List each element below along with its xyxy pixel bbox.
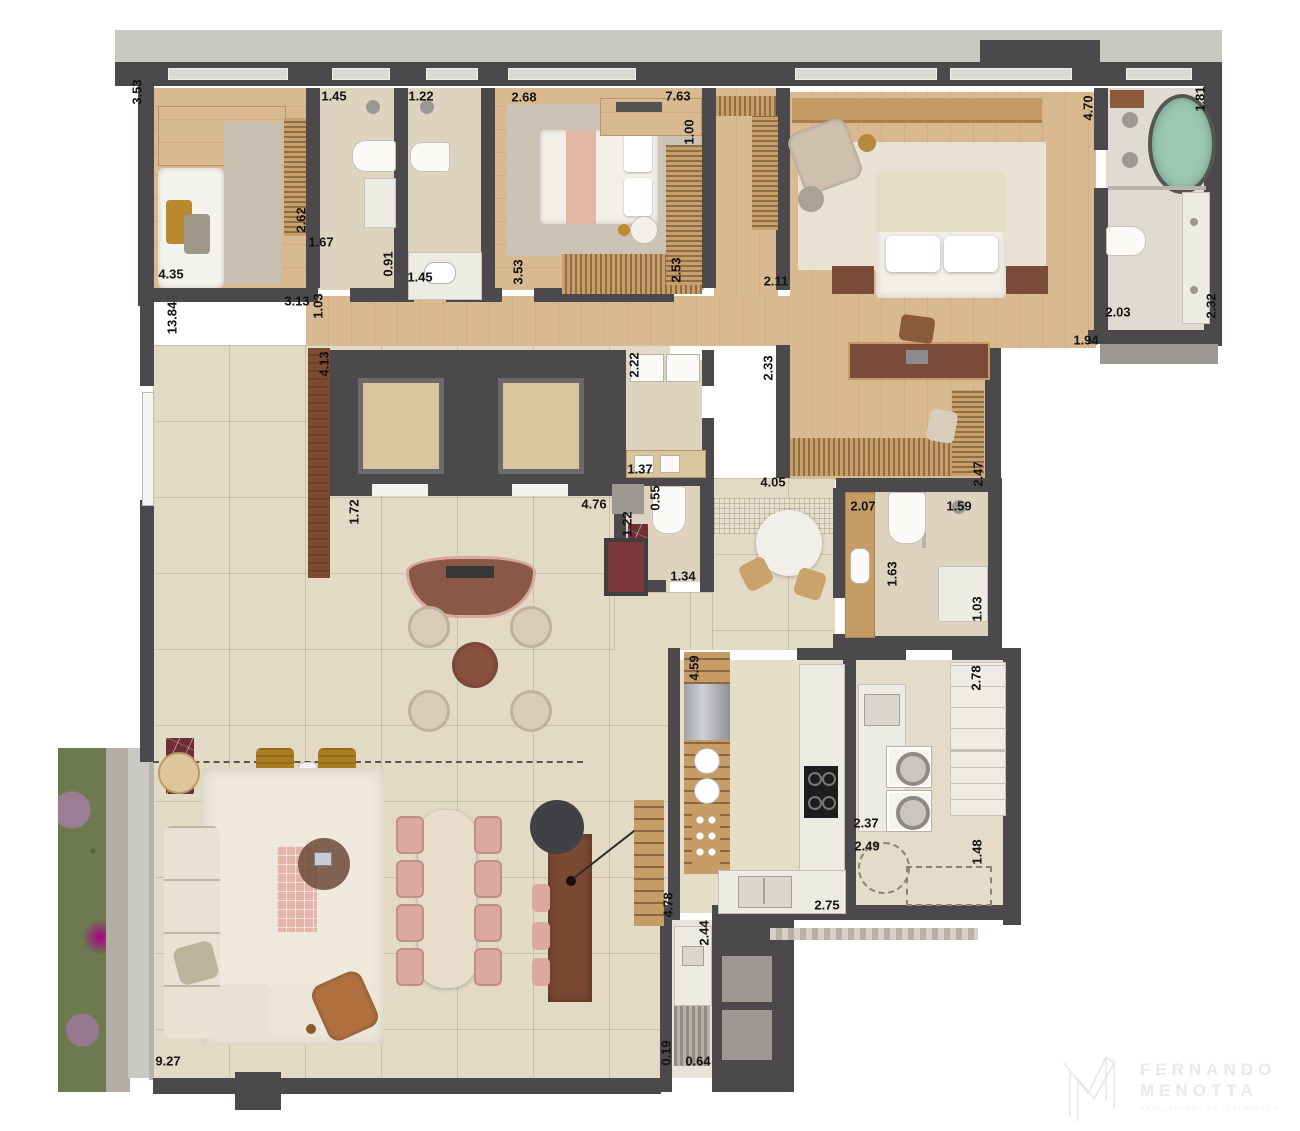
terrace-glass bbox=[149, 762, 154, 1080]
dim-label: 4.59 bbox=[687, 655, 702, 680]
logo-line2: MENOTTA bbox=[1140, 1080, 1279, 1101]
bar-stool bbox=[532, 884, 550, 912]
dining-chair bbox=[474, 948, 502, 986]
window bbox=[332, 68, 390, 80]
wall-segment bbox=[668, 648, 680, 920]
fridge bbox=[684, 684, 730, 740]
washer-door bbox=[896, 752, 930, 786]
wall-segment bbox=[702, 88, 716, 288]
balcony-sink bbox=[682, 946, 704, 966]
burner bbox=[822, 772, 836, 786]
shower-head bbox=[1122, 112, 1138, 128]
dim-label: 4.13 bbox=[317, 351, 332, 376]
decor-object bbox=[314, 852, 332, 866]
bed-blanket bbox=[876, 172, 1006, 232]
dining-chair bbox=[474, 904, 502, 942]
bench bbox=[1110, 90, 1144, 108]
toilet bbox=[888, 492, 926, 544]
logo-monogram-icon bbox=[1062, 1049, 1128, 1123]
elevator-cab bbox=[358, 378, 444, 474]
wall-segment bbox=[140, 306, 154, 386]
bed-runner bbox=[566, 130, 596, 224]
closet bbox=[790, 438, 958, 476]
pillow bbox=[624, 178, 652, 216]
shower-head bbox=[366, 100, 380, 114]
brass-table bbox=[158, 752, 200, 794]
floor-plan: 3.53 4.35 2.62 1.67 0.91 1.45 1.22 1.45 … bbox=[0, 0, 1300, 1131]
artwork bbox=[604, 538, 648, 596]
bar-stool bbox=[532, 958, 550, 986]
wall-segment bbox=[833, 488, 845, 598]
pillow bbox=[624, 134, 652, 172]
plates bbox=[694, 778, 720, 804]
laundry-sink bbox=[660, 455, 680, 473]
wall-segment bbox=[1088, 330, 1222, 344]
swivel-chair bbox=[408, 690, 450, 732]
cup-shelf bbox=[692, 812, 720, 864]
dim-label: 7.63 bbox=[665, 89, 690, 104]
stool bbox=[618, 224, 630, 236]
logo-tagline: ARQUITETURA DE INTERIORES bbox=[1140, 1106, 1279, 1113]
dim-label: 1.81 bbox=[1193, 86, 1208, 111]
elevator-door bbox=[372, 484, 428, 496]
nightstand bbox=[1006, 266, 1048, 294]
dim-label: 2.03 bbox=[1105, 305, 1130, 320]
dim-label: 13.84 bbox=[165, 302, 180, 335]
dim-label: 1.22 bbox=[408, 89, 433, 104]
wall-segment bbox=[797, 648, 856, 660]
wall-segment bbox=[856, 648, 906, 660]
slat-cabinet bbox=[308, 348, 330, 578]
wall-segment bbox=[660, 920, 672, 1092]
wall-segment bbox=[153, 1078, 661, 1094]
doormat bbox=[612, 484, 644, 514]
toilet bbox=[1106, 226, 1146, 256]
dim-label: 2.49 bbox=[854, 839, 879, 854]
living-floor-b bbox=[614, 592, 714, 650]
burner bbox=[822, 796, 836, 810]
projection-dashed-line bbox=[153, 761, 583, 763]
closet bbox=[716, 96, 776, 116]
dim-label: 2.78 bbox=[969, 665, 984, 690]
dim-label: 1.37 bbox=[627, 462, 652, 477]
dim-label: 1.63 bbox=[885, 561, 900, 586]
sofa-chaise bbox=[218, 984, 272, 1038]
shower-glass bbox=[1108, 186, 1206, 190]
wall-segment bbox=[140, 500, 154, 762]
dim-label: 4.05 bbox=[760, 475, 785, 490]
dim-label: 1.03 bbox=[970, 596, 985, 621]
dim-label: 0.91 bbox=[381, 251, 396, 276]
pillow bbox=[184, 214, 210, 254]
dining-chair bbox=[474, 860, 502, 898]
wall-segment bbox=[1094, 88, 1108, 150]
plates bbox=[694, 748, 720, 774]
dim-label: 3.53 bbox=[511, 259, 526, 284]
dim-label: 4.78 bbox=[661, 892, 676, 917]
pillow bbox=[944, 236, 998, 272]
burner bbox=[808, 772, 822, 786]
elevator-door bbox=[512, 484, 568, 496]
double-sink bbox=[738, 876, 792, 908]
dim-label: 2.53 bbox=[669, 257, 684, 282]
dim-label: 4.70 bbox=[1081, 95, 1096, 120]
window bbox=[168, 68, 288, 80]
sink-vanity bbox=[364, 178, 396, 228]
side-table bbox=[630, 216, 658, 244]
elevator-cab bbox=[498, 378, 584, 474]
wall-segment bbox=[700, 480, 714, 592]
shaft bbox=[722, 1010, 772, 1060]
ottoman bbox=[798, 186, 824, 212]
service-deck bbox=[770, 928, 978, 940]
wall-segment bbox=[988, 488, 1002, 650]
dim-label: 1.59 bbox=[946, 499, 971, 514]
laptop bbox=[906, 350, 928, 364]
dryer bbox=[666, 354, 700, 382]
window bbox=[508, 68, 636, 80]
bookshelf bbox=[634, 800, 664, 926]
dim-label: 2.07 bbox=[850, 499, 875, 514]
wall-segment bbox=[350, 288, 414, 302]
dim-label: 1.34 bbox=[670, 569, 695, 584]
dryer-door bbox=[896, 796, 930, 830]
dim-label: 2.62 bbox=[294, 207, 309, 232]
wall-segment bbox=[306, 88, 320, 288]
island-bar bbox=[548, 834, 592, 1002]
nightstand bbox=[832, 266, 874, 294]
dim-label: 2.32 bbox=[1204, 293, 1219, 318]
faucet bbox=[1190, 218, 1198, 226]
dim-label: 2.68 bbox=[511, 90, 536, 105]
dim-label: 1.22 bbox=[620, 511, 635, 536]
sofa-modular bbox=[164, 826, 220, 1038]
dim-label: 2.11 bbox=[764, 274, 789, 289]
window bbox=[950, 68, 1072, 80]
wall-segment bbox=[481, 88, 495, 288]
swivel-chair bbox=[510, 606, 552, 648]
wall-segment bbox=[394, 88, 408, 288]
dim-label: 1.03 bbox=[311, 293, 326, 318]
swivel-chair bbox=[510, 690, 552, 732]
dim-label: 2.33 bbox=[761, 355, 776, 380]
window bbox=[1126, 68, 1192, 80]
hallway-floor bbox=[306, 296, 790, 346]
tv bbox=[616, 102, 662, 112]
coffee-table bbox=[452, 642, 498, 688]
wall-segment bbox=[776, 88, 790, 290]
service-sink bbox=[864, 694, 900, 726]
dim-label: 4.76 bbox=[581, 497, 606, 512]
window bbox=[795, 68, 937, 80]
shower-head bbox=[1122, 152, 1138, 168]
floor-lamp bbox=[306, 1024, 316, 1034]
closet bbox=[752, 116, 778, 230]
sink-divider bbox=[763, 878, 765, 904]
toilet bbox=[410, 142, 450, 172]
fireplace-slot bbox=[446, 566, 494, 578]
side-table bbox=[858, 134, 876, 152]
dining-chair bbox=[474, 816, 502, 854]
logo-line1: FERNANDO bbox=[1140, 1059, 1279, 1080]
dim-label: 2.47 bbox=[971, 461, 986, 486]
entry-door bbox=[142, 392, 154, 506]
dim-label: 9.27 bbox=[155, 1054, 180, 1069]
pendant-lamp bbox=[566, 876, 576, 886]
dim-label: 1.45 bbox=[407, 270, 432, 285]
ac-ledge bbox=[1100, 344, 1218, 364]
dim-label: 0.64 bbox=[685, 1054, 710, 1069]
dim-label: 1.67 bbox=[308, 235, 333, 250]
desk-chair bbox=[898, 314, 935, 344]
dining-table bbox=[418, 810, 476, 988]
rug bbox=[224, 122, 282, 284]
bar-stool bbox=[532, 922, 550, 950]
dining-chair bbox=[396, 904, 424, 942]
dim-label: 2.44 bbox=[697, 920, 712, 945]
wall-segment bbox=[702, 350, 714, 386]
drawer-cabinet bbox=[950, 750, 1006, 816]
dim-label: 2.22 bbox=[627, 352, 642, 377]
dim-label: 1.00 bbox=[682, 119, 697, 144]
burner bbox=[808, 796, 822, 810]
swivel-chair bbox=[408, 606, 450, 648]
service-shaft-block bbox=[712, 920, 794, 1092]
faucet bbox=[1190, 286, 1198, 294]
pendant-hood bbox=[530, 800, 584, 854]
dim-label: 3.13 bbox=[284, 294, 309, 309]
dim-label: 2.75 bbox=[814, 898, 839, 913]
dining-chair bbox=[396, 948, 424, 986]
sink-basin bbox=[850, 548, 870, 584]
dim-label: 4.35 bbox=[158, 267, 183, 282]
window bbox=[426, 68, 478, 80]
shaft bbox=[722, 956, 772, 1002]
dining-chair bbox=[396, 860, 424, 898]
toilet bbox=[352, 140, 396, 172]
logo-text-block: FERNANDO MENOTTA ARQUITETURA DE INTERIOR… bbox=[1140, 1059, 1279, 1113]
dim-label: 0.19 bbox=[659, 1040, 674, 1065]
pillow bbox=[886, 236, 940, 272]
dim-label: 2.37 bbox=[853, 816, 878, 831]
dim-label: 3.53 bbox=[130, 79, 145, 104]
future-item-rect bbox=[906, 866, 992, 906]
logo: FERNANDO MENOTTA ARQUITETURA DE INTERIOR… bbox=[1062, 1046, 1294, 1126]
garden-curb bbox=[106, 748, 130, 1092]
wall-segment bbox=[776, 345, 790, 478]
wall-segment bbox=[235, 1072, 281, 1110]
dim-label: 1.48 bbox=[970, 839, 985, 864]
chair bbox=[925, 408, 958, 444]
dim-label: 1.45 bbox=[321, 89, 346, 104]
dim-label: 1.94 bbox=[1073, 333, 1098, 348]
dining-chair bbox=[396, 816, 424, 854]
dim-label: 0.55 bbox=[648, 485, 663, 510]
dim-label: 1.72 bbox=[347, 499, 362, 524]
